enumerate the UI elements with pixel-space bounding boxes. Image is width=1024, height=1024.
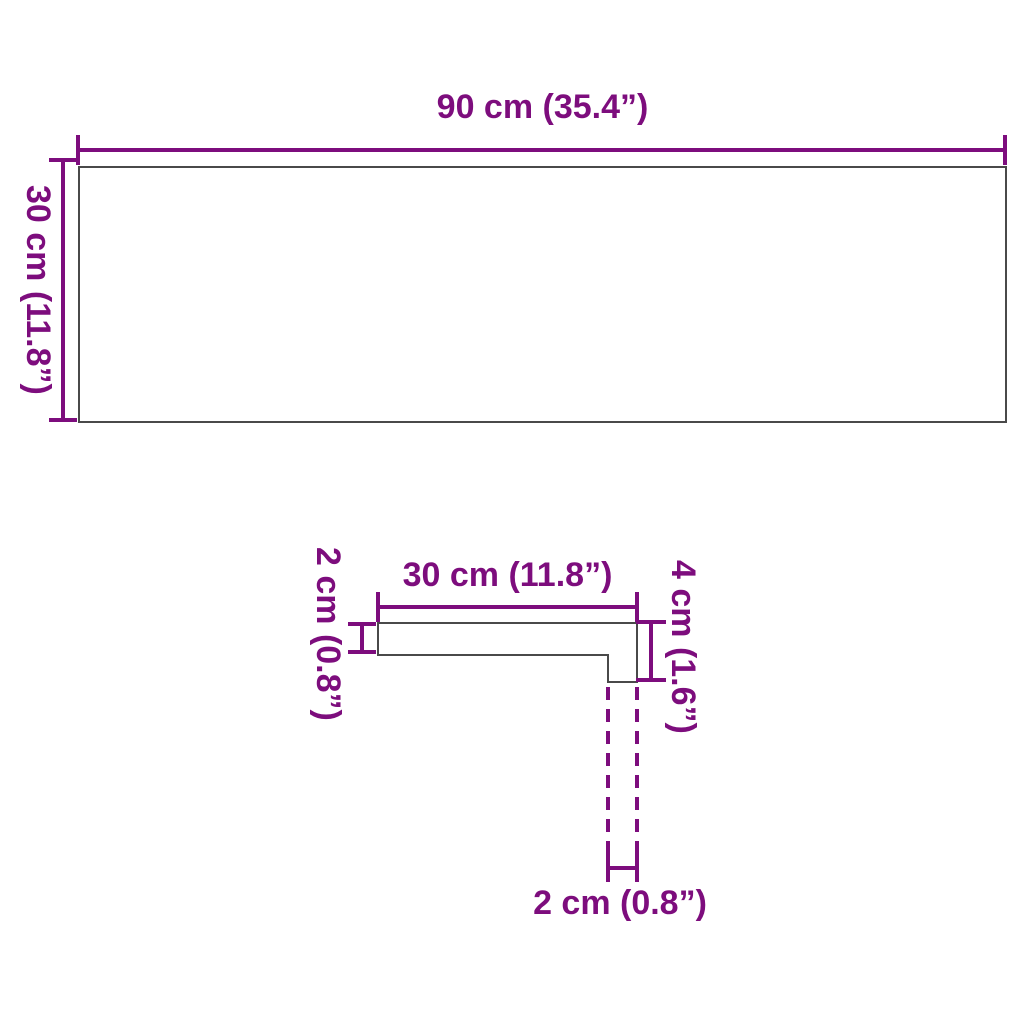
depth-dimension-line <box>378 605 637 609</box>
height-dimension-tick-top <box>49 158 77 162</box>
board-side-profile-outline <box>378 623 637 682</box>
width-dimension-line <box>78 148 1007 152</box>
projection-dashed-line-left <box>606 687 610 855</box>
board-top-view-rectangle <box>78 166 1007 423</box>
depth-dimension-label: 30 cm (11.8”) <box>378 556 637 595</box>
thickness-dimension-tick-top <box>348 622 376 626</box>
depth-dimension-tick-right <box>635 592 639 622</box>
height-dimension-tick-bottom <box>49 418 77 422</box>
total-height-dimension-line <box>649 622 653 682</box>
width-dimension-tick-right <box>1003 135 1007 165</box>
thickness-dimension-tick-bottom <box>348 650 376 654</box>
depth-dimension-tick-left <box>376 592 380 622</box>
dimension-diagram: 90 cm (35.4”) 30 cm (11.8”) 30 cm (11.8”… <box>0 0 1024 1024</box>
lip-width-dimension-line <box>608 866 637 870</box>
lip-width-dimension-label: 2 cm (0.8”) <box>420 884 820 923</box>
projection-dashed-line-right <box>635 687 639 855</box>
width-dimension-label: 90 cm (35.4”) <box>78 88 1007 127</box>
thickness-dimension-label: 2 cm (0.8”) <box>308 524 347 744</box>
total-height-dimension-tick-top <box>636 620 666 624</box>
height-dimension-label: 30 cm (11.8”) <box>18 160 57 420</box>
total-height-dimension-tick-bottom <box>636 678 666 682</box>
lip-width-dimension-tick-right <box>635 854 639 882</box>
height-dimension-line <box>61 160 65 420</box>
lip-width-dimension-tick-left <box>606 854 610 882</box>
board-side-profile-shape <box>377 622 639 684</box>
total-height-dimension-label: 4 cm (1.6”) <box>663 537 702 757</box>
